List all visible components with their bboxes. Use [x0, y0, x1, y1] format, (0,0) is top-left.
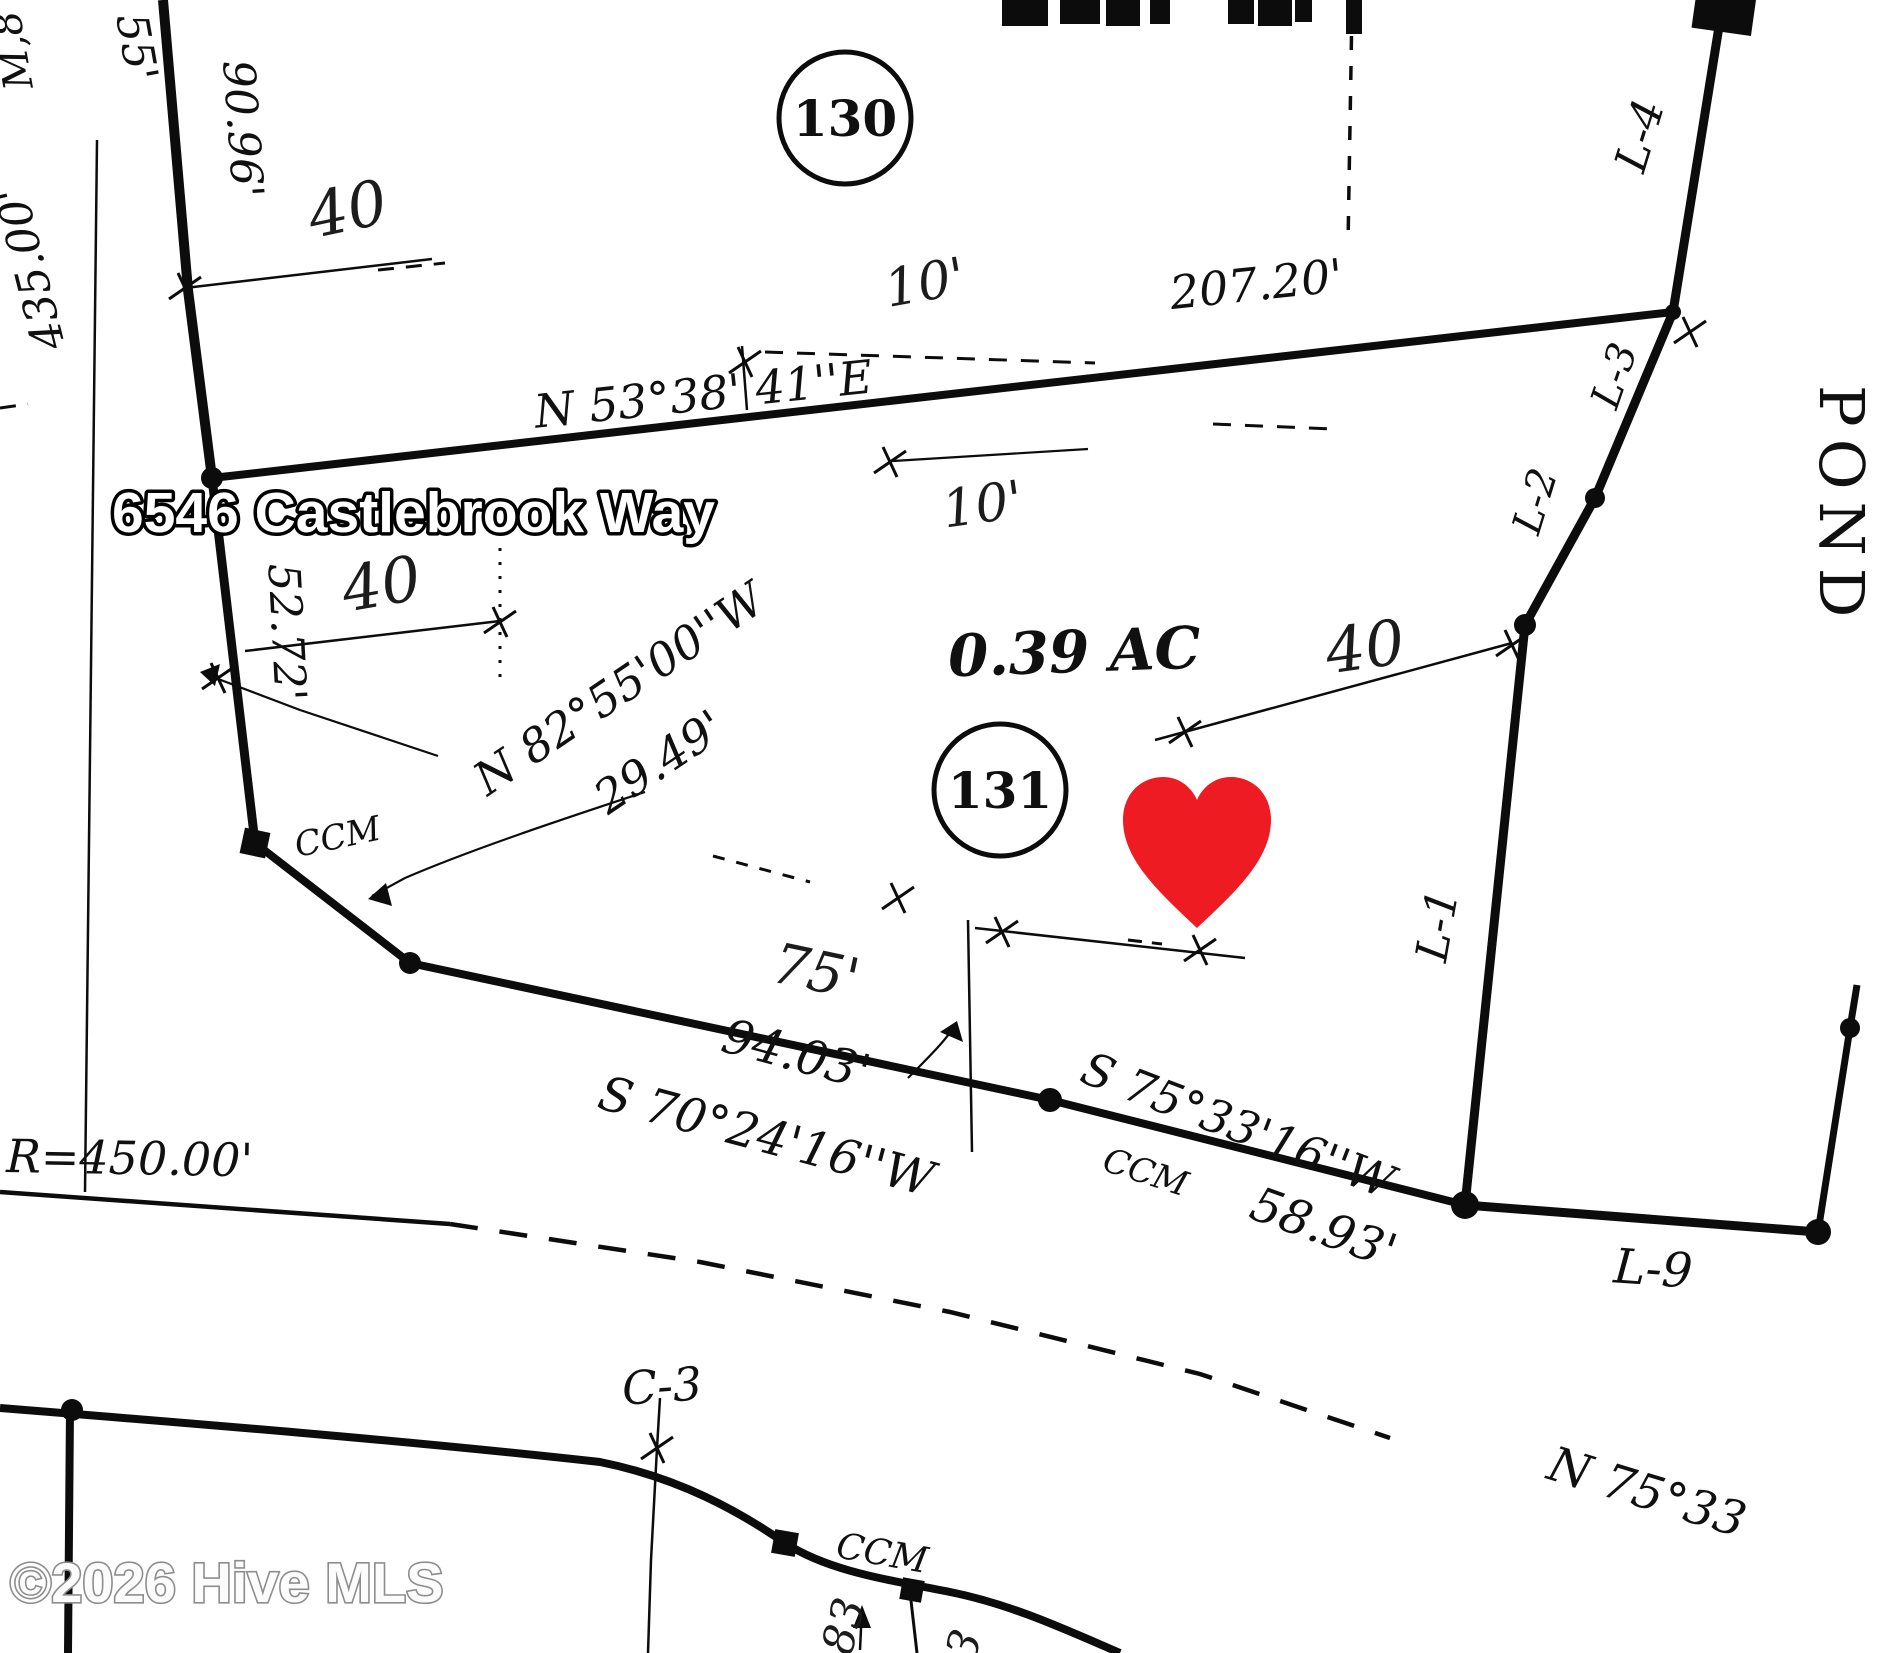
distance-west: 52.72' — [257, 562, 315, 703]
heart-marker — [1123, 777, 1271, 928]
corner-node — [1451, 1191, 1479, 1219]
plat-map-page: 6546 Castlebrook Way©2026 Hive MLS0.39 A… — [0, 0, 1894, 1653]
line-label-l9: L-9 — [1611, 1238, 1694, 1299]
address-overlay: 6546 Castlebrook Way — [112, 481, 715, 545]
bearing-n75-road: N 75°33 — [1541, 1436, 1753, 1549]
line-label-l2: L-2 — [1504, 463, 1567, 540]
cut-off-top-text — [1002, 0, 1362, 34]
corner-node — [1840, 1018, 1860, 1038]
boundary-lines — [163, 0, 1857, 1232]
ccm-monument-west — [240, 828, 271, 859]
corner-node — [61, 1399, 83, 1421]
watermark-text: ©2026 Hive MLS — [10, 1551, 443, 1614]
plat-map: 6546 Castlebrook Way©2026 Hive MLS0.39 A… — [0, 0, 1894, 1653]
corner-node — [1038, 1088, 1062, 1112]
lot-area: 0.39 AC — [947, 614, 1202, 691]
distance-9403: 94.03' — [716, 1008, 876, 1101]
line-label-l1: L-1 — [1406, 886, 1469, 967]
setback-40-upperleft: 40 — [300, 165, 393, 253]
radius-label: R=450.00' — [5, 1129, 254, 1187]
ccm-label-south: CCM — [1098, 1140, 1194, 1205]
setback-40-left: 40 — [335, 541, 426, 627]
map-labels: 6546 Castlebrook Way©2026 Hive MLS0.39 A… — [0, 7, 1878, 1653]
hand-mark-83: 83 — [812, 1593, 876, 1653]
setback-75: 75' — [767, 931, 865, 1013]
hand-mark-3: 3 — [936, 1623, 994, 1653]
distance-9096: 90.96' — [212, 58, 273, 199]
corner-node — [1805, 1219, 1831, 1245]
lot-number-131: 131 — [948, 761, 1052, 820]
setback-40-right: 40 — [1320, 605, 1409, 688]
corner-node — [1514, 614, 1536, 636]
ccm-monument-road — [771, 1529, 799, 1557]
line-label-l4: L-4 — [1605, 94, 1675, 179]
survey-tick-marks — [169, 273, 1706, 1463]
distance-435: 435.00' — [0, 182, 76, 356]
corner-node — [1585, 488, 1605, 508]
corner-node — [399, 952, 421, 974]
distance-north-line: 207.20' — [1166, 248, 1345, 320]
setback-10-mid: 10' — [939, 470, 1027, 541]
edge-text-m8: M,8 — [0, 7, 43, 94]
curve-label-c3: C-3 — [620, 1356, 704, 1415]
setback-10-upper: 10' — [880, 247, 970, 320]
bearing-s70: S 70°24'16''W — [593, 1065, 944, 1209]
corner-monument-top — [1692, 0, 1757, 36]
pond-label: POND — [1805, 385, 1878, 630]
ccm-label-west: CCM — [291, 808, 385, 865]
lot-number-130: 130 — [793, 89, 897, 148]
corner-node — [1665, 304, 1681, 320]
distance-55: 55' — [105, 10, 167, 86]
